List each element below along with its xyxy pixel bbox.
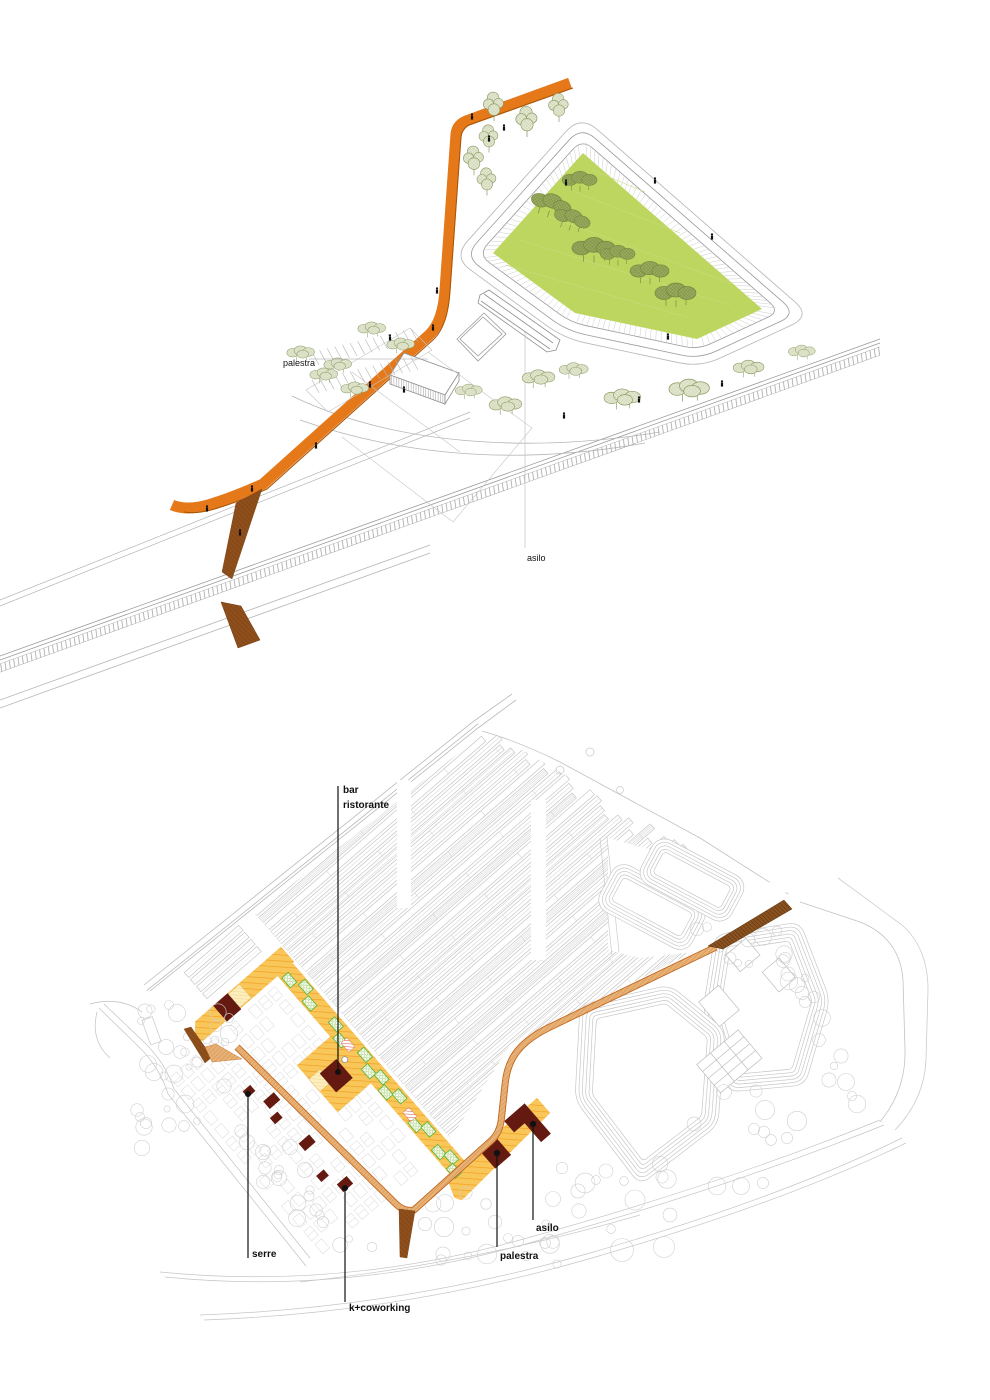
svg-text:palestra: palestra xyxy=(283,358,315,368)
svg-text:ristorante: ristorante xyxy=(343,800,390,811)
svg-text:bar: bar xyxy=(343,785,359,796)
svg-text:serre: serre xyxy=(252,1249,277,1260)
svg-text:palestra: palestra xyxy=(500,1251,539,1262)
svg-text:asilo: asilo xyxy=(536,1223,559,1234)
svg-text:k+coworking: k+coworking xyxy=(349,1303,410,1314)
svg-text:asilo: asilo xyxy=(527,553,546,563)
